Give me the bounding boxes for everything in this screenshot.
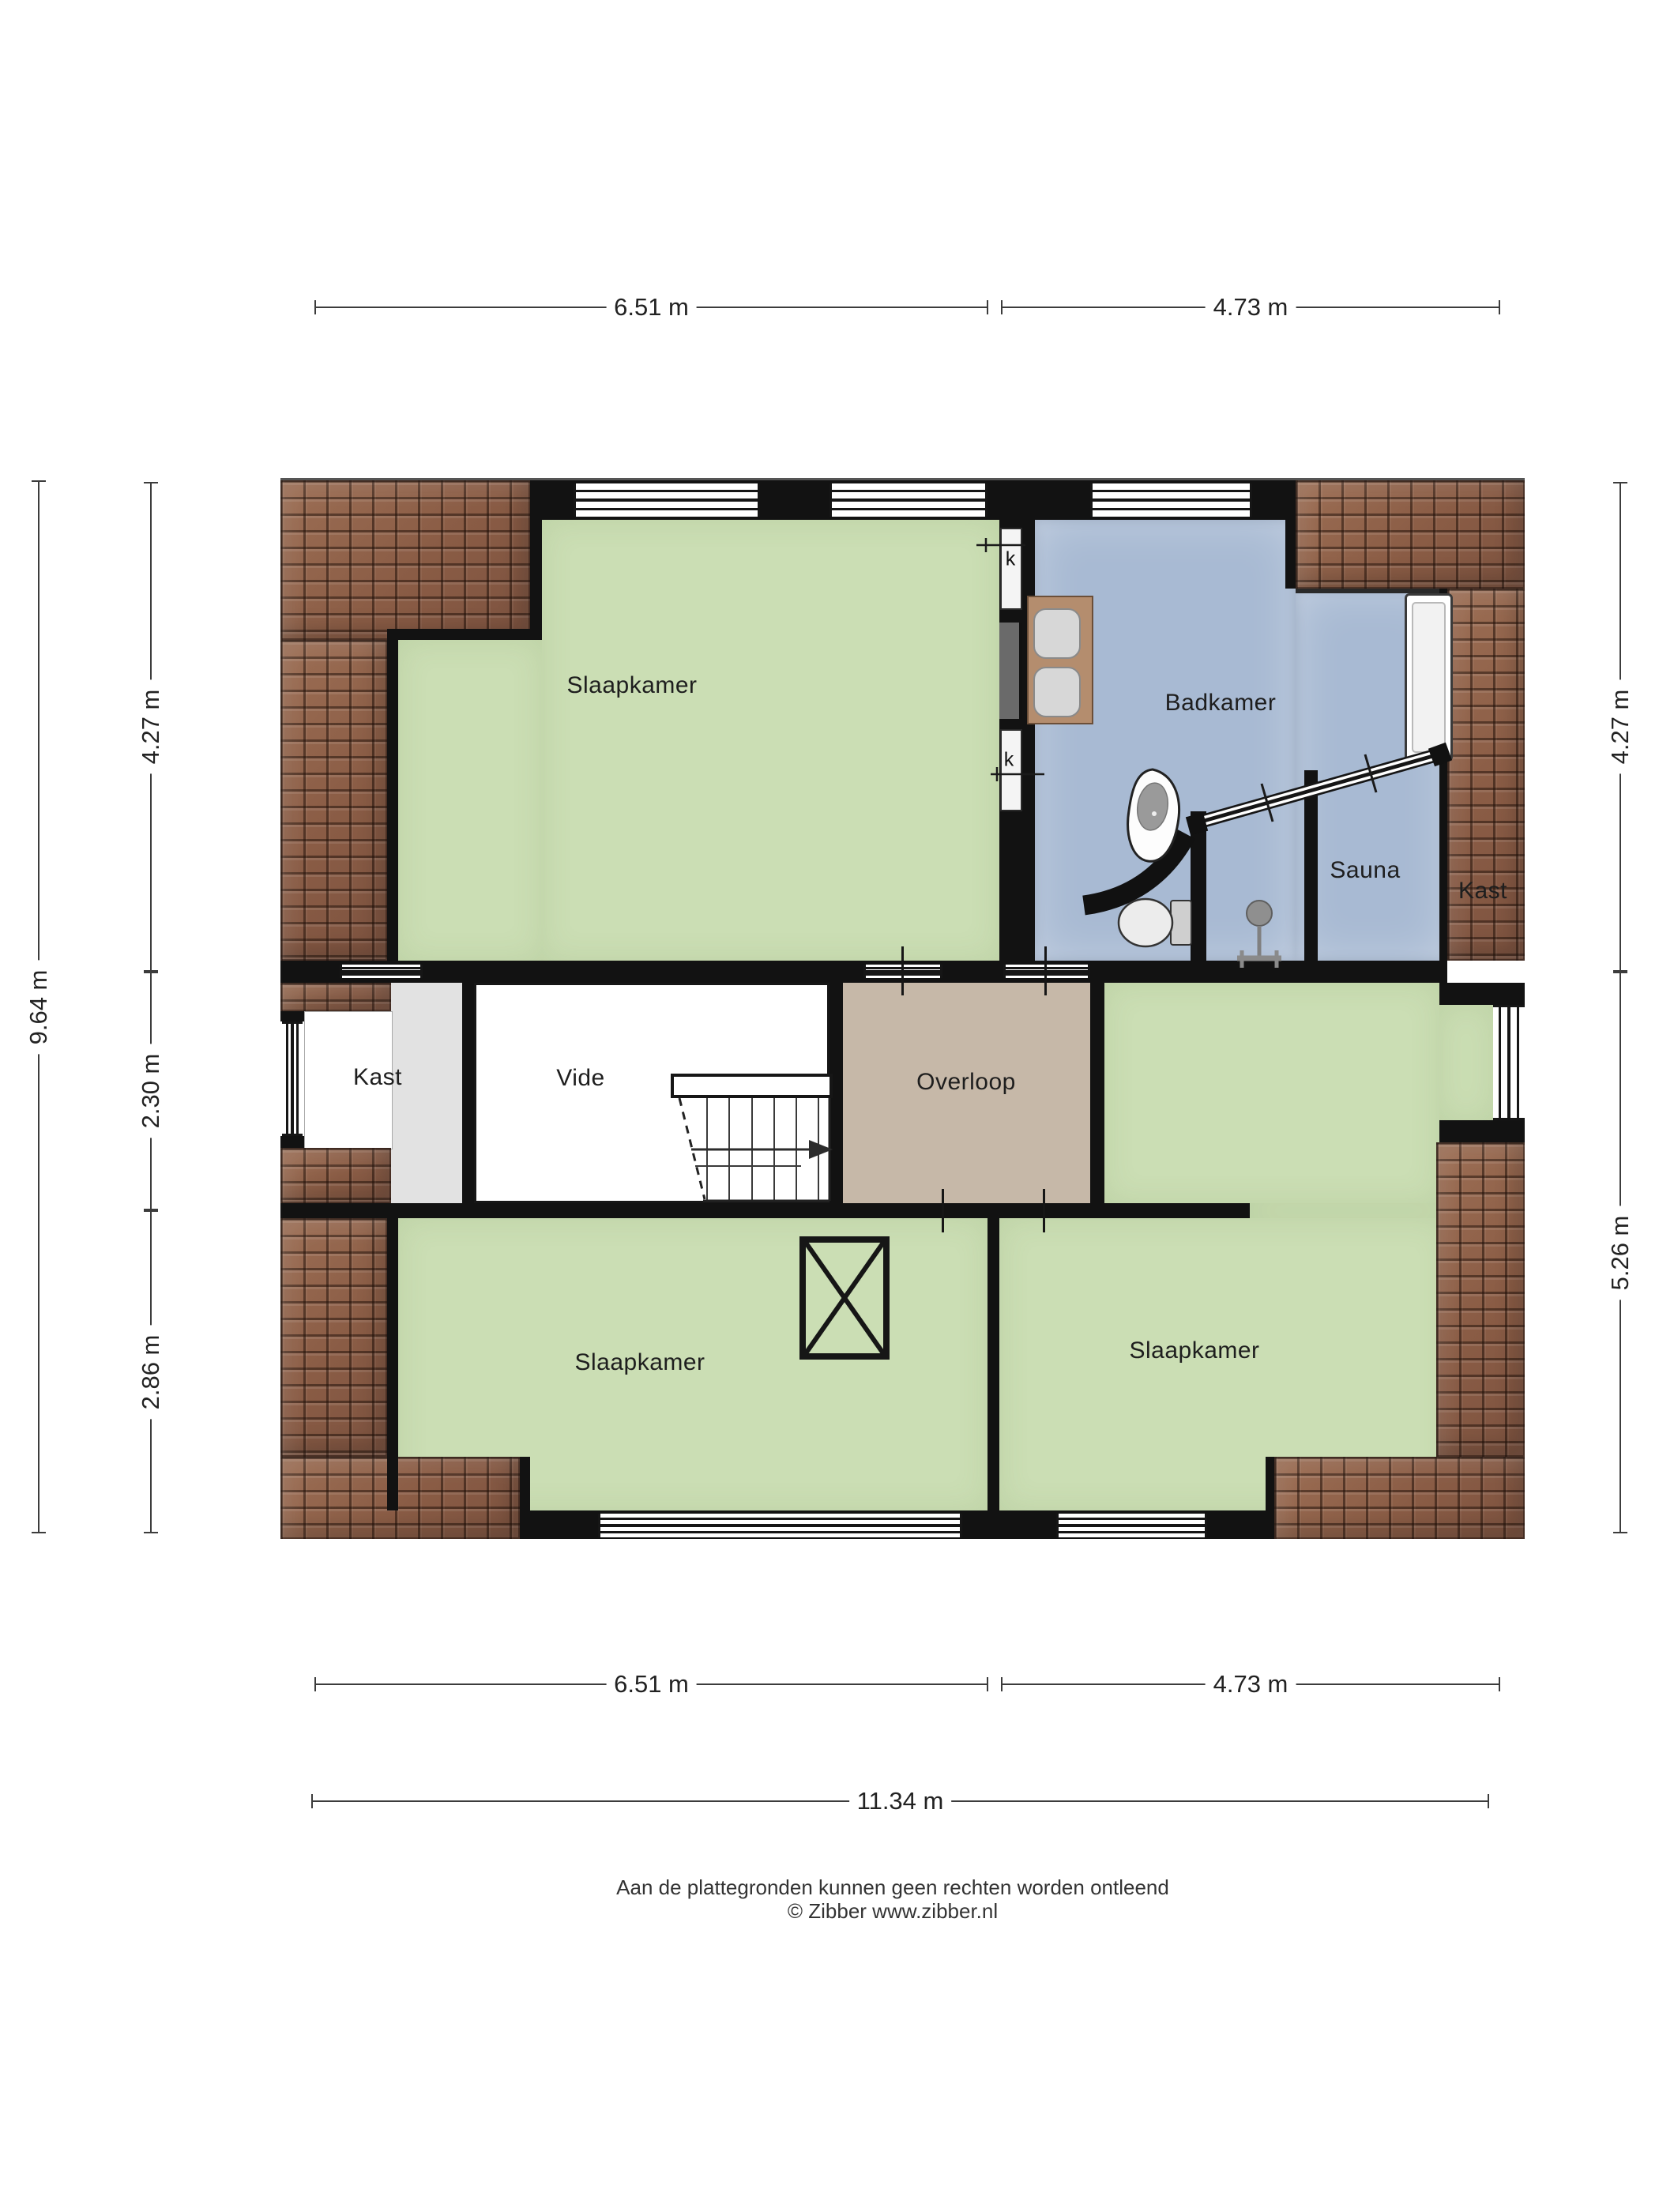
dim-left-bottom-label: 2.86 m: [135, 1325, 167, 1419]
dim-left-top: 4.27 m: [150, 482, 152, 972]
dim-bottom-total-label: 11.34 m: [849, 1785, 952, 1817]
stairs: [672, 1075, 831, 1201]
dim-bottom-right-label: 4.73 m: [1206, 1668, 1296, 1700]
door-mark-k2-line: [991, 767, 1044, 781]
dim-left-mid-label: 2.30 m: [135, 1044, 167, 1138]
floorplan-canvas: Slaapkamer Badkamer Sauna Kast Kast Vide…: [0, 0, 1659, 2212]
label-landing: Overloop: [916, 1069, 1016, 1096]
stairs-landing: [672, 1075, 831, 1097]
dim-top-left-label: 6.51 m: [606, 292, 697, 323]
dim-top-right: 4.73 m: [1001, 307, 1500, 308]
dim-right-top: 4.27 m: [1619, 482, 1621, 972]
dim-left-total: 9.64 m: [38, 480, 39, 1533]
label-sauna: Sauna: [1330, 857, 1400, 884]
dim-bottom-right: 4.73 m: [1001, 1683, 1500, 1685]
label-bedroom-bottomleft: Slaapkamer: [574, 1349, 705, 1376]
dim-left-top-label: 4.27 m: [135, 680, 167, 774]
dim-left-bottom: 2.86 m: [150, 1210, 152, 1533]
dim-bottom-total: 11.34 m: [311, 1800, 1489, 1802]
dim-right-bottom: 5.26 m: [1619, 972, 1621, 1533]
label-closet-left: Kast: [353, 1064, 402, 1091]
label-bedroom-bottomright: Slaapkamer: [1129, 1337, 1259, 1364]
shower-fixture: [1237, 901, 1281, 968]
dim-bottom-left: 6.51 m: [314, 1683, 988, 1685]
label-door-k2: k: [1004, 749, 1014, 772]
dim-left-mid: 2.30 m: [150, 972, 152, 1210]
footer-copyright: © Zibber www.zibber.nl: [788, 1899, 998, 1924]
door-mark-k1-line: [976, 538, 1025, 552]
void-marker: [803, 1240, 886, 1356]
diagonal-glass-wall: [1188, 750, 1449, 826]
label-closet-right: Kast: [1458, 878, 1507, 905]
footer-disclaimer: Aan de plattegronden kunnen geen rechten…: [616, 1875, 1169, 1900]
label-bedroom-topleft: Slaapkamer: [566, 672, 697, 699]
dim-right-bottom-label: 5.26 m: [1604, 1206, 1636, 1300]
dim-bottom-left-label: 6.51 m: [606, 1668, 697, 1700]
dim-top-left: 6.51 m: [314, 307, 988, 308]
label-bathroom: Badkamer: [1165, 690, 1277, 717]
label-vide: Vide: [556, 1065, 605, 1092]
toilet: [1119, 899, 1191, 946]
dim-right-top-label: 4.27 m: [1604, 680, 1636, 774]
dim-top-right-label: 4.73 m: [1206, 292, 1296, 323]
label-door-k1: k: [1006, 548, 1016, 571]
dim-left-total-label: 9.64 m: [23, 960, 55, 1054]
